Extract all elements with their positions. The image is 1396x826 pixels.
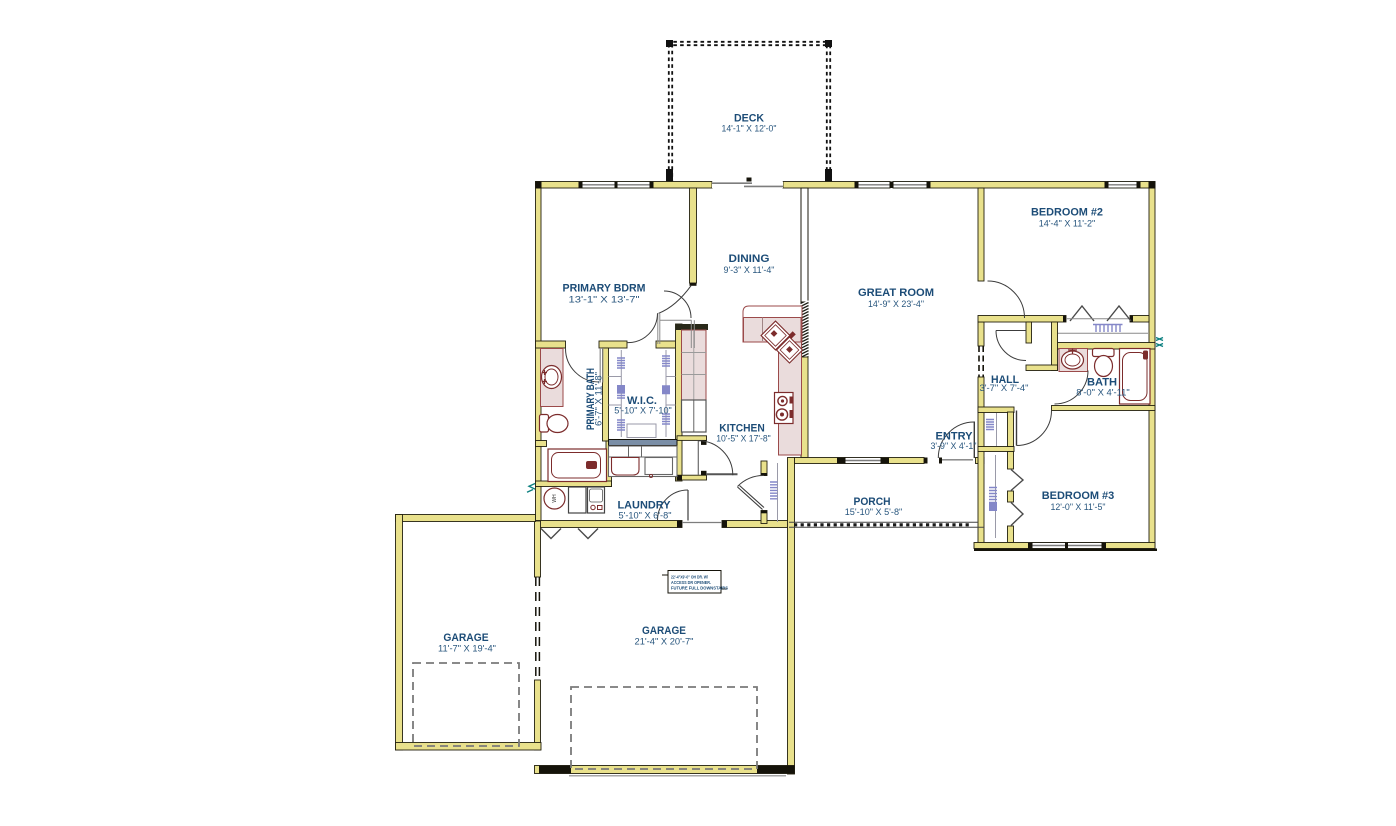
svg-text:14'-4" X 11'-2": 14'-4" X 11'-2" [1039,218,1096,229]
svg-text:8'-0" X 4'-11": 8'-0" X 4'-11" [1076,387,1130,398]
svg-text:22'-4"X9'-0" OH DR. W/: 22'-4"X9'-0" OH DR. W/ [671,575,708,581]
svg-text:5'-10" X 7'-10": 5'-10" X 7'-10" [614,405,672,416]
svg-text:15'-10" X 5'-8": 15'-10" X 5'-8" [845,506,903,517]
svg-text:14'-9" X 23'-4": 14'-9" X 23'-4" [868,298,924,309]
svg-text:WH: WH [552,494,558,503]
svg-text:14'-1" X 12'-0": 14'-1" X 12'-0" [722,123,777,134]
svg-text:13'-1" X 13'-7": 13'-1" X 13'-7" [569,294,640,305]
svg-text:6'-7" X 11'-8": 6'-7" X 11'-8" [593,372,604,426]
svg-text:3'-9" X 4'-1": 3'-9" X 4'-1" [931,440,977,451]
svg-text:12'-0" X 11'-5": 12'-0" X 11'-5" [1051,501,1106,512]
svg-text:10'-5" X 17'-8": 10'-5" X 17'-8" [716,433,771,444]
svg-text:3'-7" X 7'-4": 3'-7" X 7'-4" [980,382,1029,393]
svg-text:11'-7" X 19'-4": 11'-7" X 19'-4" [438,643,496,654]
svg-text:9'-3" X 11'-4": 9'-3" X 11'-4" [724,264,775,275]
svg-text:ACCESS DR OPENER.: ACCESS DR OPENER. [671,580,711,586]
svg-text:5'-10" X 6'-8": 5'-10" X 6'-8" [619,510,672,521]
svg-text:FUTURE FULL DOWNSTAIRS: FUTURE FULL DOWNSTAIRS [671,586,729,592]
svg-text:21'-4" X 20'-7": 21'-4" X 20'-7" [635,636,694,647]
